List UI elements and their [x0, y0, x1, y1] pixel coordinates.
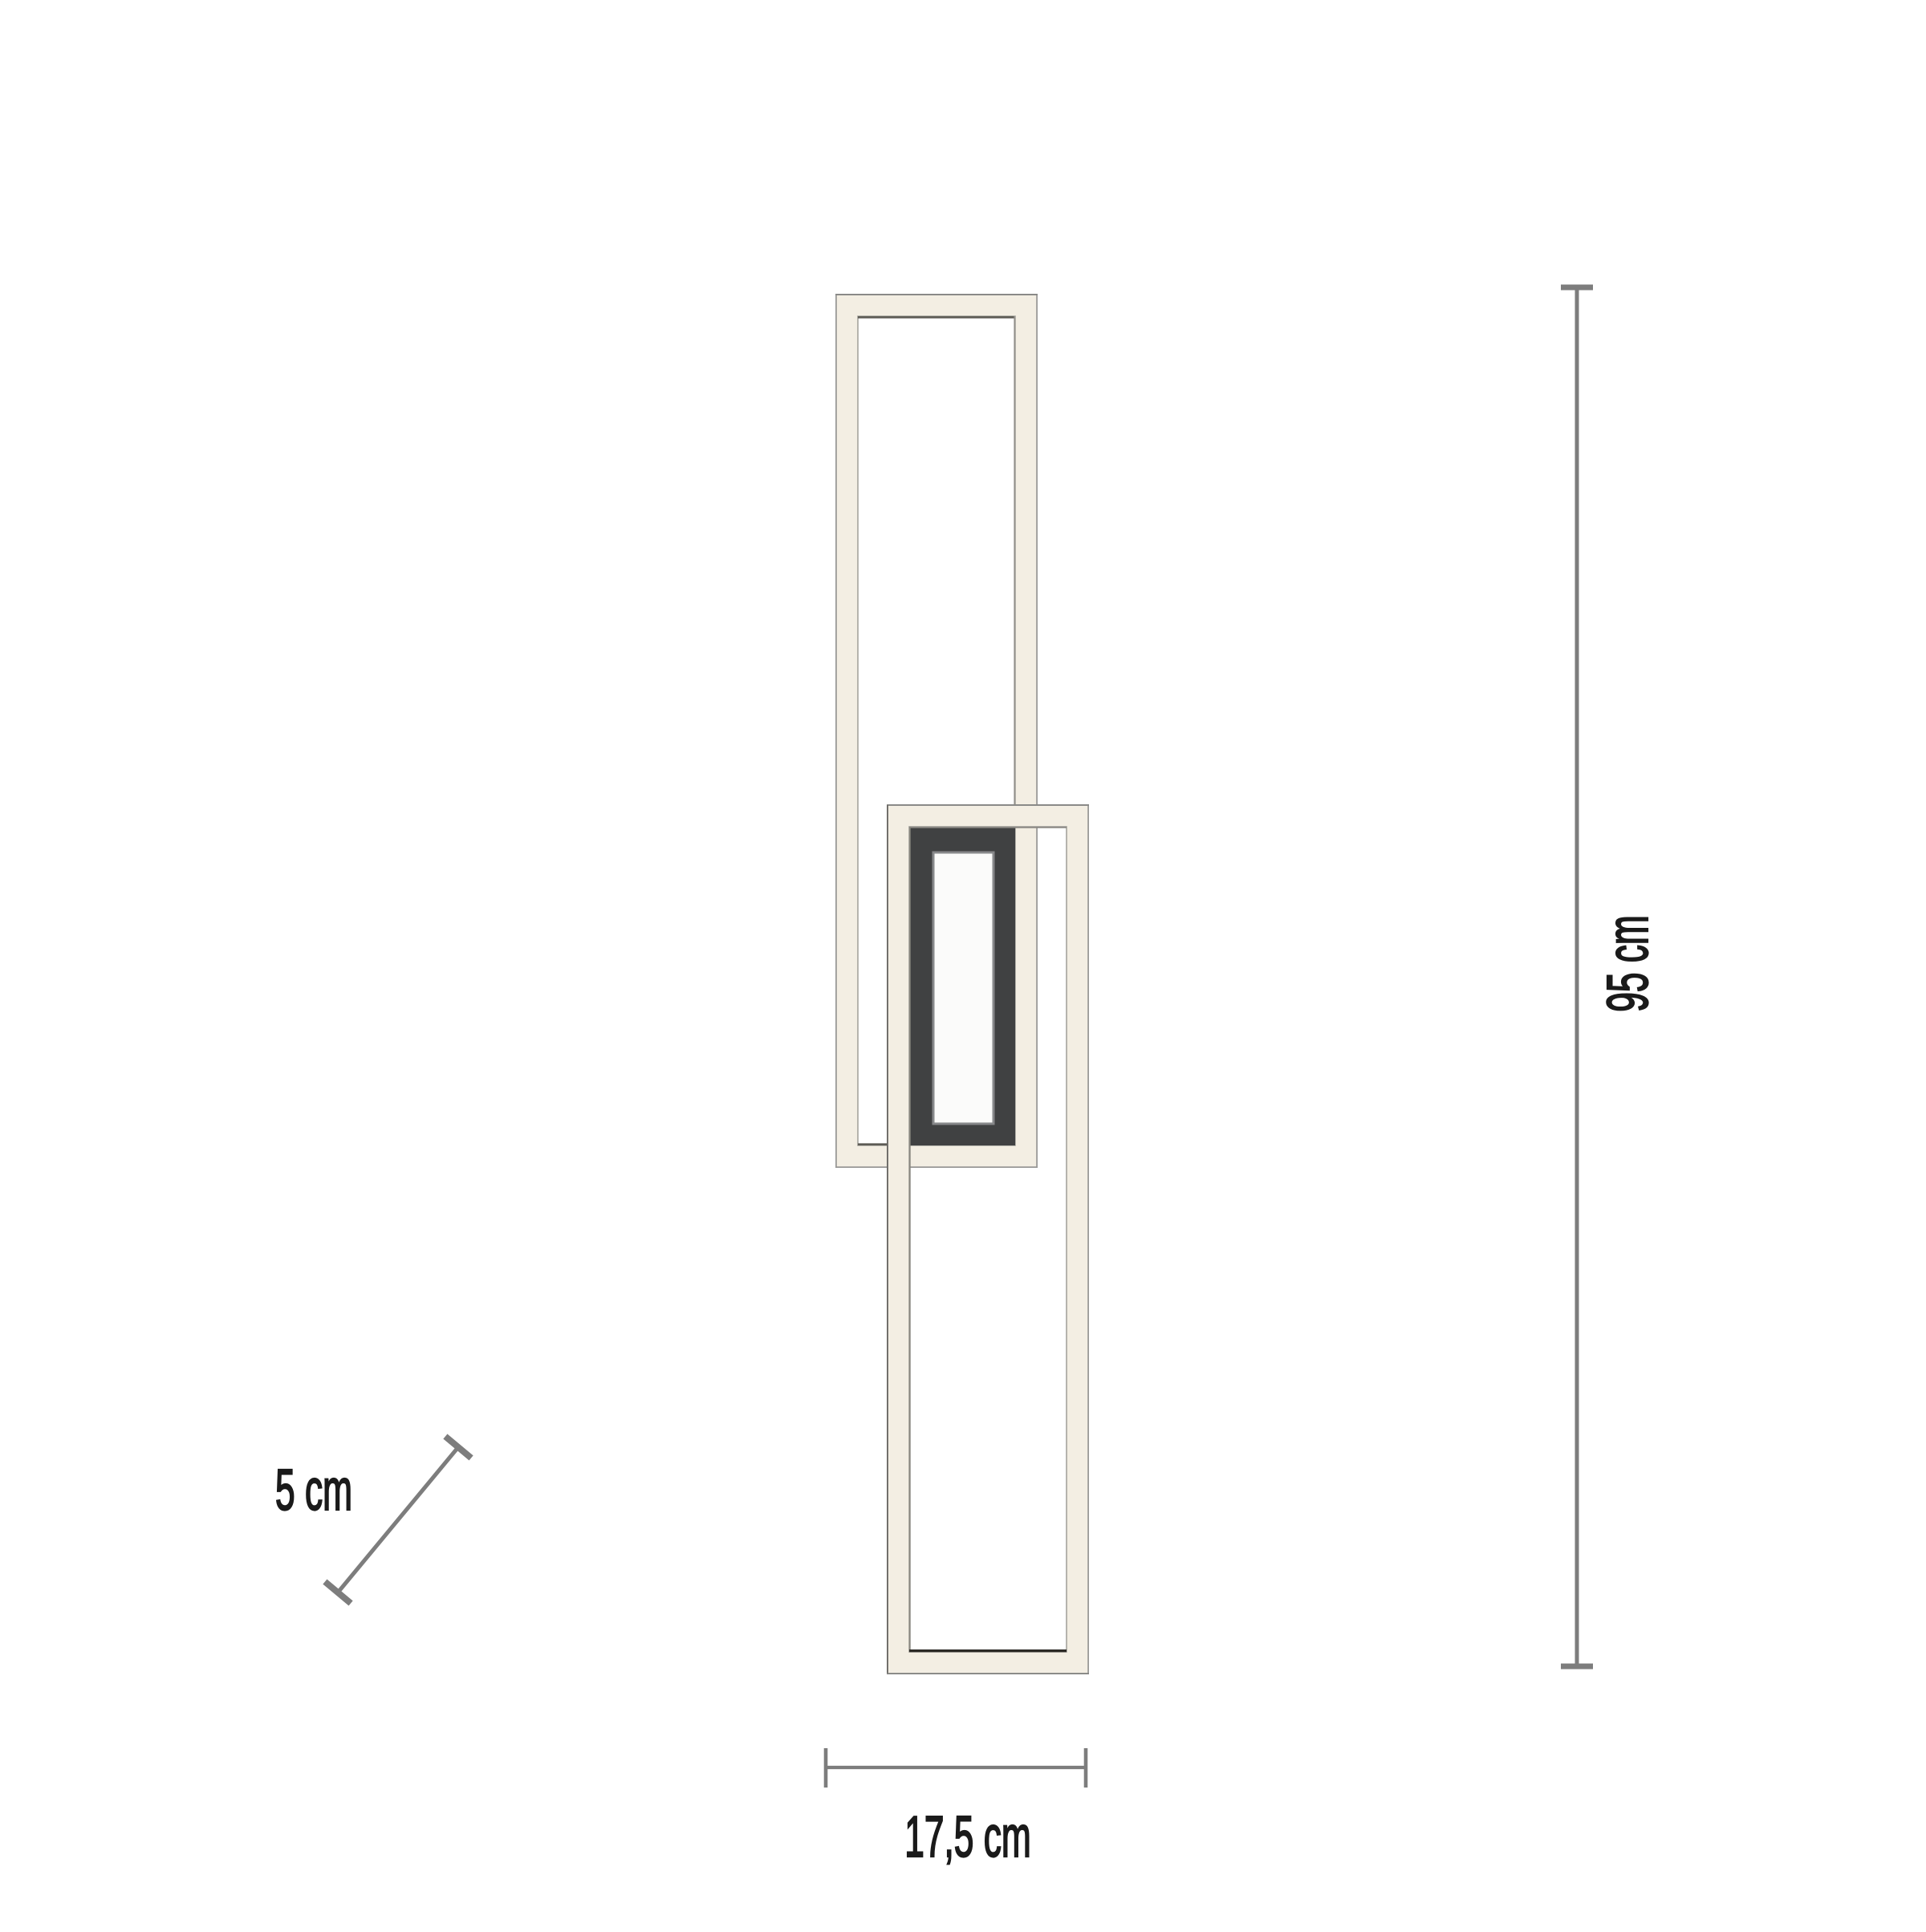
svg-text:17,5 cm: 17,5 cm — [904, 1804, 1030, 1869]
svg-text:95 cm: 95 cm — [1595, 915, 1660, 1012]
svg-text:5 cm: 5 cm — [275, 1458, 352, 1523]
